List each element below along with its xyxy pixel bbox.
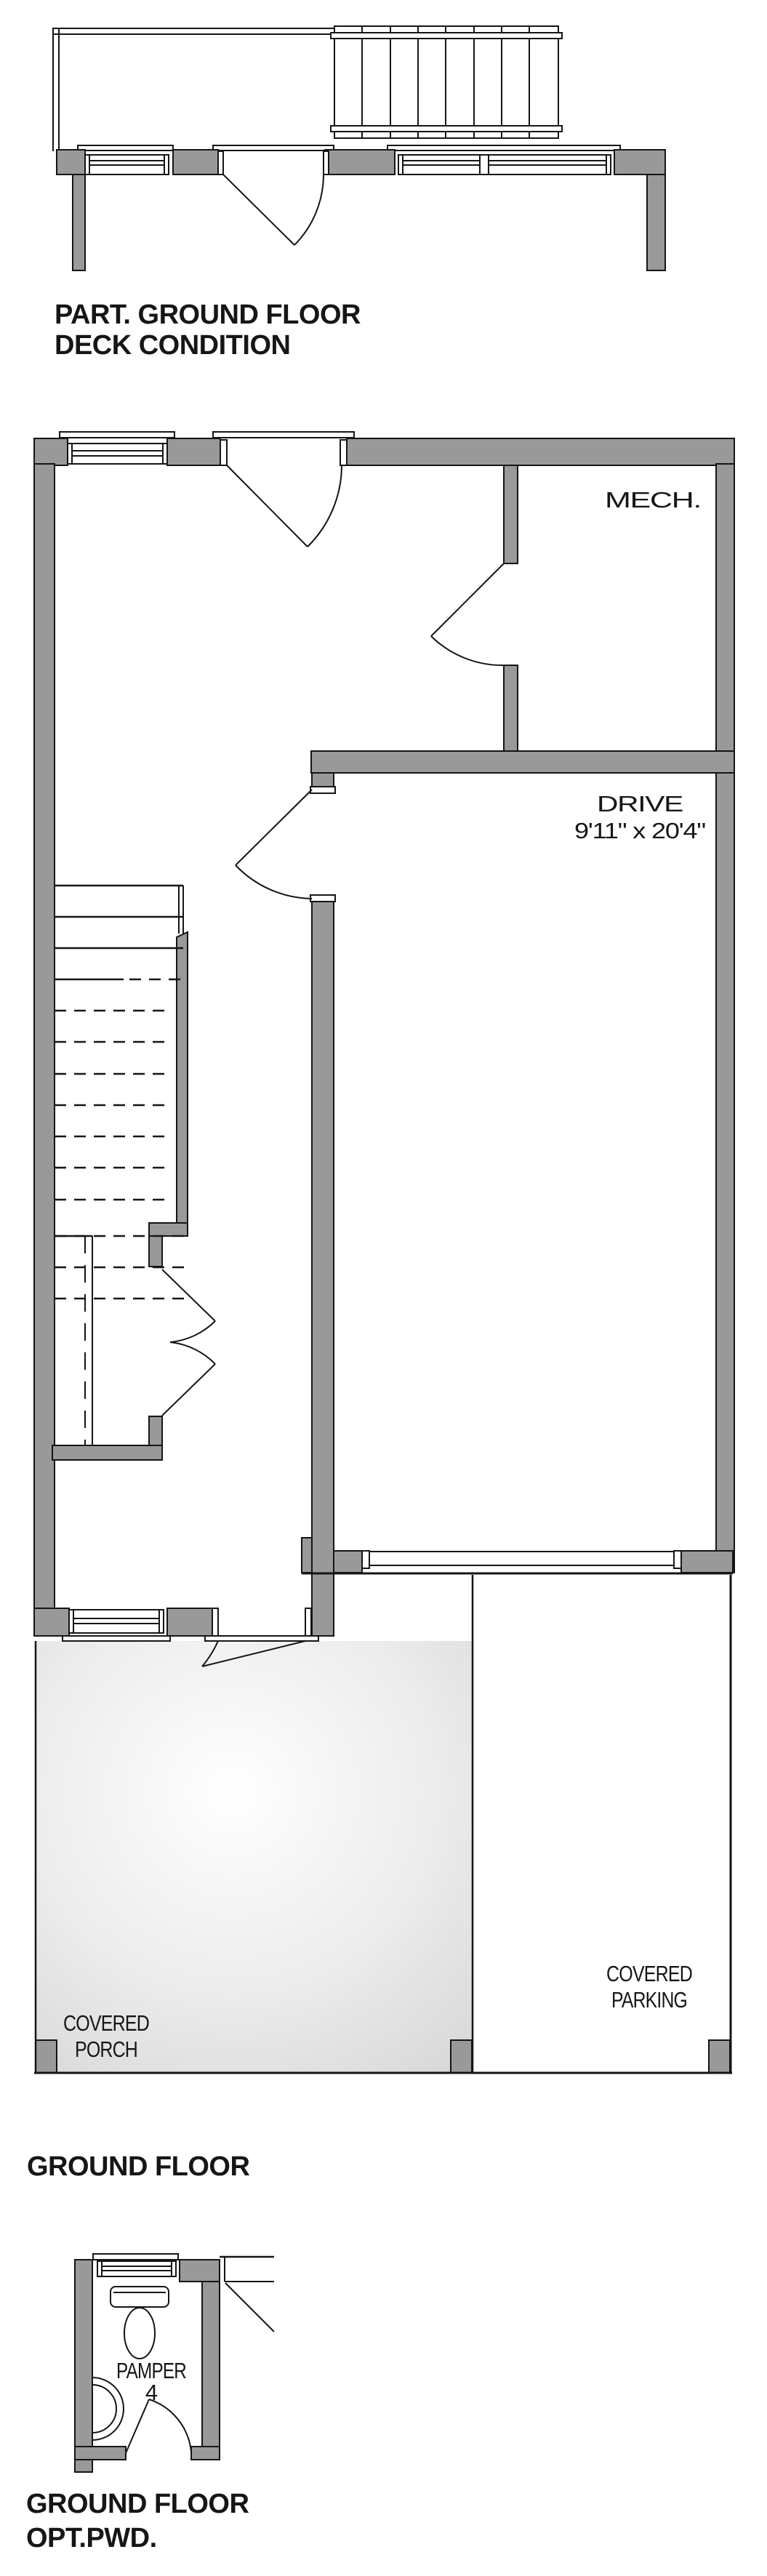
entry-door-jamb-right	[305, 1608, 311, 1636]
deck-plan-title-line1: PART. GROUND FLOOR	[55, 300, 361, 330]
parking-label-line2: PARKING	[611, 1987, 687, 2013]
parking-label-line1: COVERED	[606, 1961, 692, 1986]
deck-door-jamb-right	[324, 151, 329, 174]
toilet	[111, 2287, 169, 2359]
adjacent-room-lines	[220, 2257, 274, 2332]
pwd-title-line2: OPT.PWD.	[26, 2523, 157, 2553]
front-window	[68, 444, 167, 464]
pwd-door	[126, 2399, 191, 2453]
deck-door-header	[213, 145, 334, 151]
pwd-window	[97, 2261, 176, 2276]
pwd-window-sill	[93, 2254, 178, 2260]
drive-door-jamb-bottom	[310, 895, 335, 902]
deck-plan-title-line2: DECK CONDITION	[55, 330, 290, 361]
powder-room-plan: PAMPER 4	[75, 2254, 274, 2472]
porch-label-line1: COVERED	[63, 2010, 149, 2036]
deck-boards	[331, 26, 562, 138]
garage-door	[302, 1551, 733, 1573]
drive-room-dimensions: 9'11" x 20'4"	[574, 818, 705, 843]
entry-door-header	[205, 1636, 318, 1641]
drive-room-label: DRIVE	[597, 791, 683, 816]
deck-window-left	[85, 155, 169, 174]
deck-door	[223, 174, 324, 245]
drive-door	[236, 790, 312, 899]
stairs	[55, 886, 185, 1445]
deck-guardrail	[52, 28, 336, 151]
mech-door	[431, 563, 504, 665]
front-door-jamb-left	[220, 440, 227, 465]
pwd-title-line1: GROUND FLOOR	[26, 2489, 249, 2519]
front-window-sill	[60, 432, 174, 438]
deck-window-sill-left	[78, 145, 173, 151]
deck-plan	[52, 26, 665, 270]
front-door-header	[213, 432, 354, 438]
mech-room-label: MECH.	[605, 487, 701, 513]
understair-closet-doors	[162, 1269, 215, 1416]
floor-plan-sheet: PART. GROUND FLOOR DECK CONDITION	[0, 0, 767, 2576]
front-door	[227, 465, 342, 547]
entry-door-jamb-left	[212, 1608, 218, 1636]
deck-door-jamb-left	[218, 151, 223, 174]
covered-porch-area	[35, 1641, 473, 2073]
ground-floor-plan: MECH. DRIVE 9'11" x 20'4" COVERED PORCH …	[34, 432, 734, 2073]
porch-label-line2: PORCH	[75, 2037, 137, 2062]
sink	[92, 2378, 124, 2440]
deck-window-sill-right	[387, 145, 620, 151]
ground-floor-title: GROUND FLOOR	[27, 2151, 249, 2182]
deck-window-pair	[398, 155, 611, 174]
floor-plan-drawing: PART. GROUND FLOOR DECK CONDITION	[0, 0, 767, 2576]
front-door-jamb-right	[340, 440, 347, 465]
drive-door-jamb-top	[310, 787, 335, 793]
entry-window	[63, 1610, 170, 1641]
pamper-room-label-line2: 4	[145, 2380, 158, 2405]
